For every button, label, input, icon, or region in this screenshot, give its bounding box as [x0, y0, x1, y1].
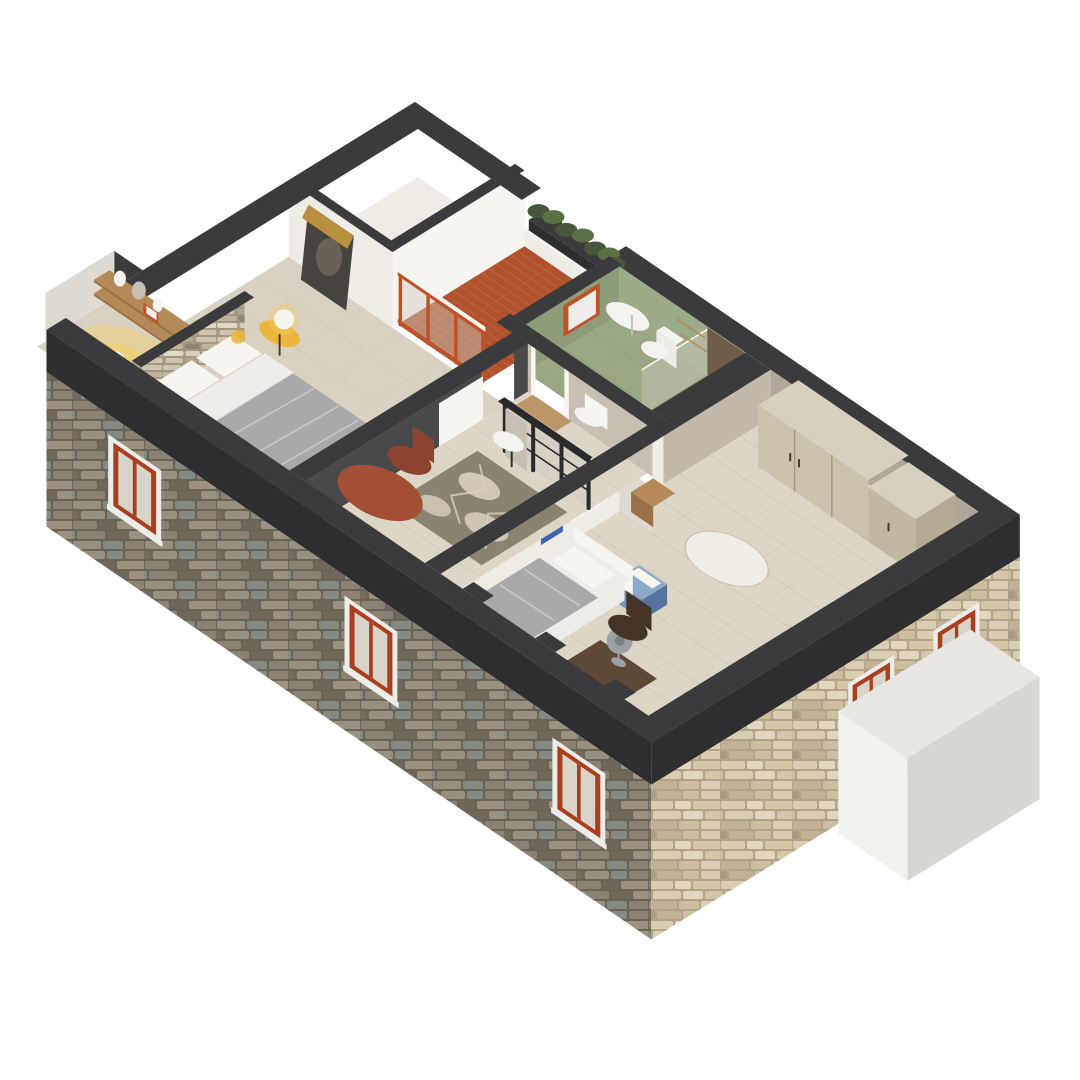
sw-window-living-window-mullion [369, 622, 373, 678]
bathroom-door-jamb-2 [564, 369, 569, 420]
floorplan-3d-render-page [0, 0, 1080, 1080]
hall-ne-face-left [528, 344, 531, 394]
bedroom1-se-wall-face-a [514, 344, 528, 401]
balcony-plants [542, 210, 564, 224]
buddha-face [316, 238, 342, 276]
sw-window-bedroom2-window-mullion [577, 764, 581, 820]
bathroom-door-jamb-1 [531, 346, 536, 397]
balcony-plants [572, 229, 594, 243]
yellow-floor-cushion [231, 330, 245, 344]
shelf-vase-1 [114, 271, 126, 287]
table-lamp-shade [274, 309, 294, 329]
sw-window-bedroom1-window-mullion [133, 461, 137, 517]
shelf-vase-2 [132, 282, 146, 300]
isometric-floorplan-render [0, 0, 1080, 1080]
